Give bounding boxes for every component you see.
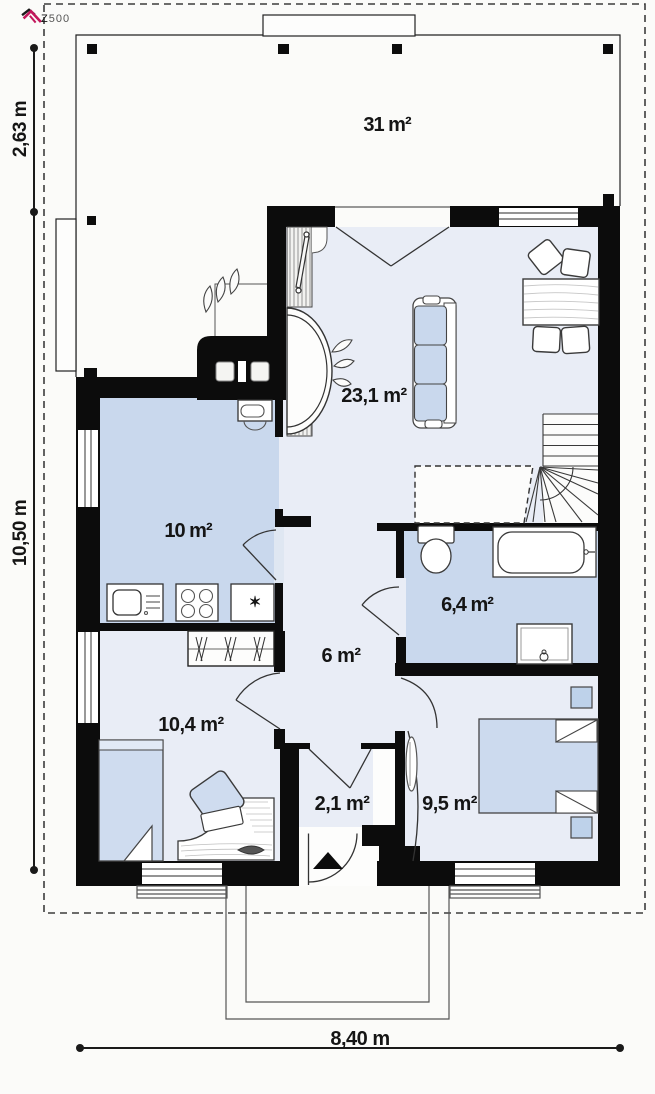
svg-text:Z500: Z500 (41, 13, 70, 25)
svg-text:6,4 m²: 6,4 m² (441, 594, 494, 616)
svg-text:2,1 m²: 2,1 m² (315, 793, 371, 815)
svg-text:9,5 m²: 9,5 m² (422, 793, 478, 815)
svg-text:8,40 m: 8,40 m (330, 1028, 389, 1050)
svg-text:23,1 m²: 23,1 m² (341, 385, 407, 407)
svg-text:10 m²: 10 m² (164, 520, 213, 542)
svg-text:✶: ✶ (249, 594, 262, 611)
svg-text:6 m²: 6 m² (321, 645, 361, 667)
svg-text:10,50 m: 10,50 m (10, 500, 31, 566)
svg-text:10,4 m²: 10,4 m² (158, 714, 224, 736)
svg-text:31 m²: 31 m² (363, 114, 412, 136)
svg-text:2,63 m: 2,63 m (10, 101, 31, 157)
